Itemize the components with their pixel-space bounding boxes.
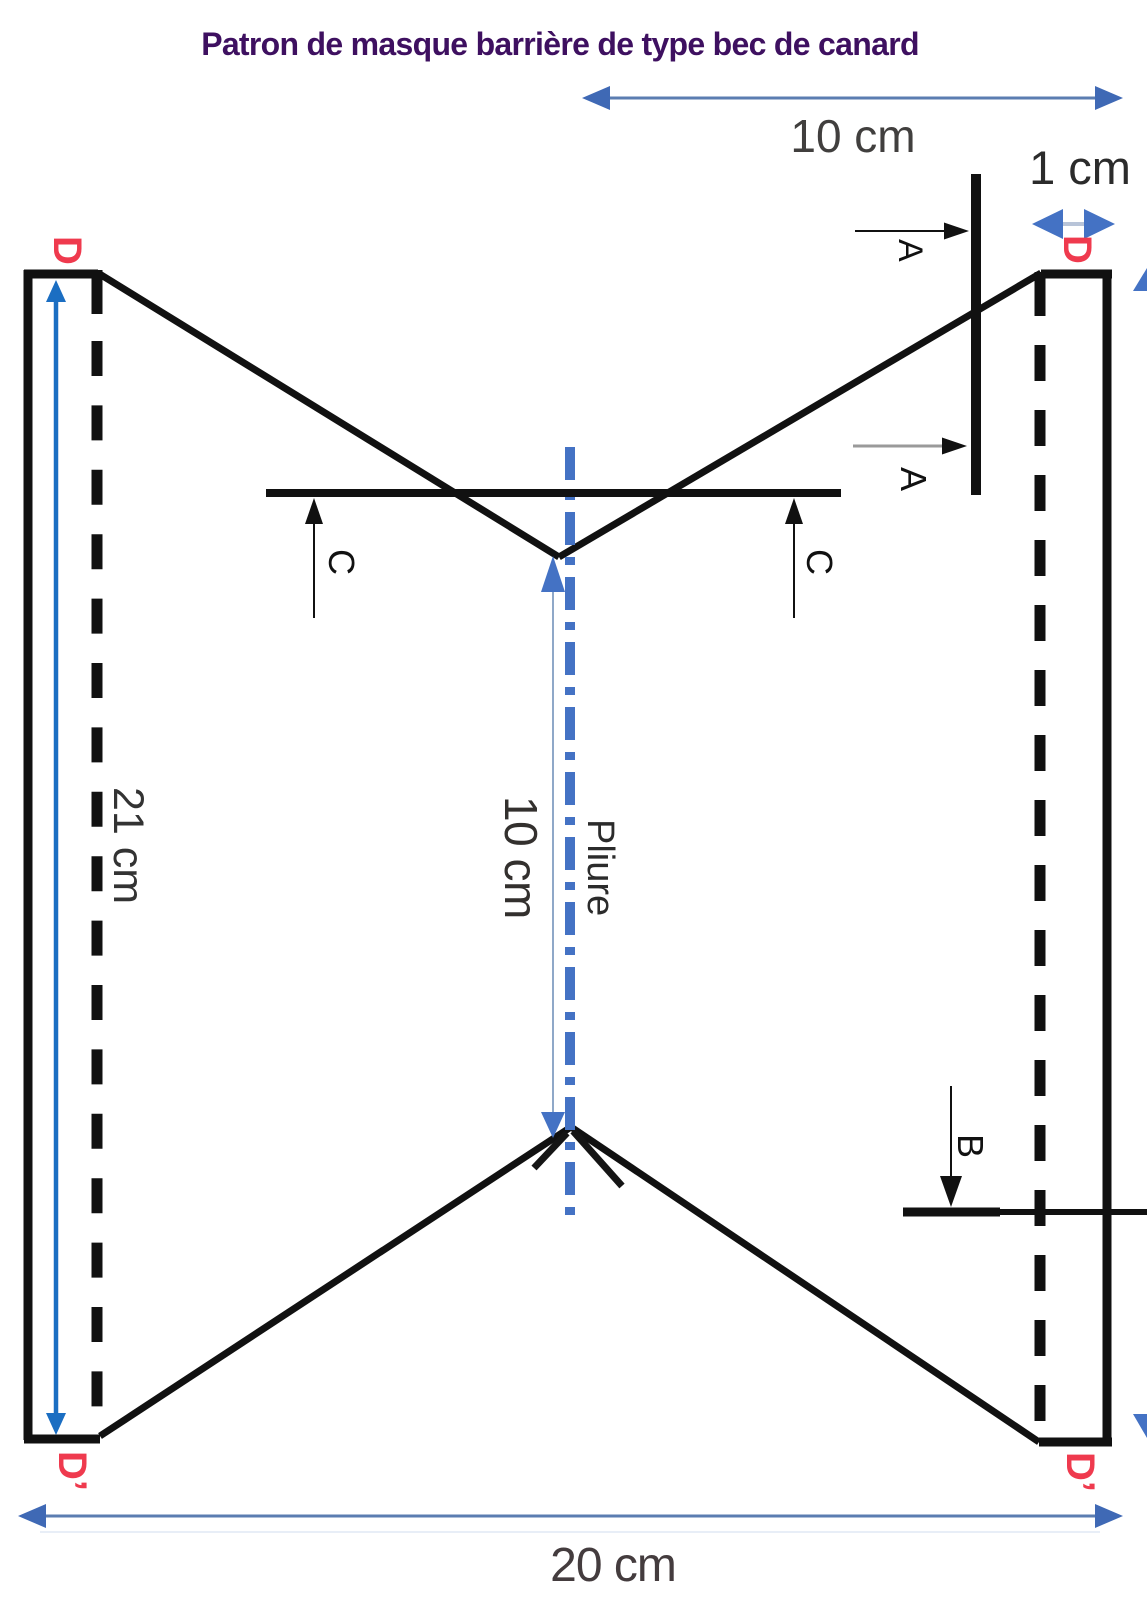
svg-text:Patron de masque barrière de t: Patron de masque barrière de type bec de… — [201, 26, 919, 62]
svg-text:B: B — [950, 1134, 991, 1158]
svg-text:C: C — [799, 549, 840, 575]
svg-text:10 cm: 10 cm — [495, 796, 547, 919]
svg-text:D’: D’ — [1058, 1452, 1102, 1492]
svg-text:10 cm: 10 cm — [790, 110, 915, 162]
svg-text:D: D — [45, 236, 89, 265]
svg-text:C: C — [321, 549, 362, 575]
svg-text:A: A — [893, 467, 934, 491]
svg-text:D: D — [1055, 235, 1099, 264]
svg-text:D’: D’ — [50, 1451, 94, 1491]
svg-text:1 cm: 1 cm — [1029, 141, 1131, 194]
svg-text:Pliure: Pliure — [579, 819, 621, 916]
svg-text:21 cm: 21 cm — [104, 787, 152, 904]
svg-text:A: A — [891, 239, 929, 262]
svg-text:20 cm: 20 cm — [550, 1539, 676, 1592]
